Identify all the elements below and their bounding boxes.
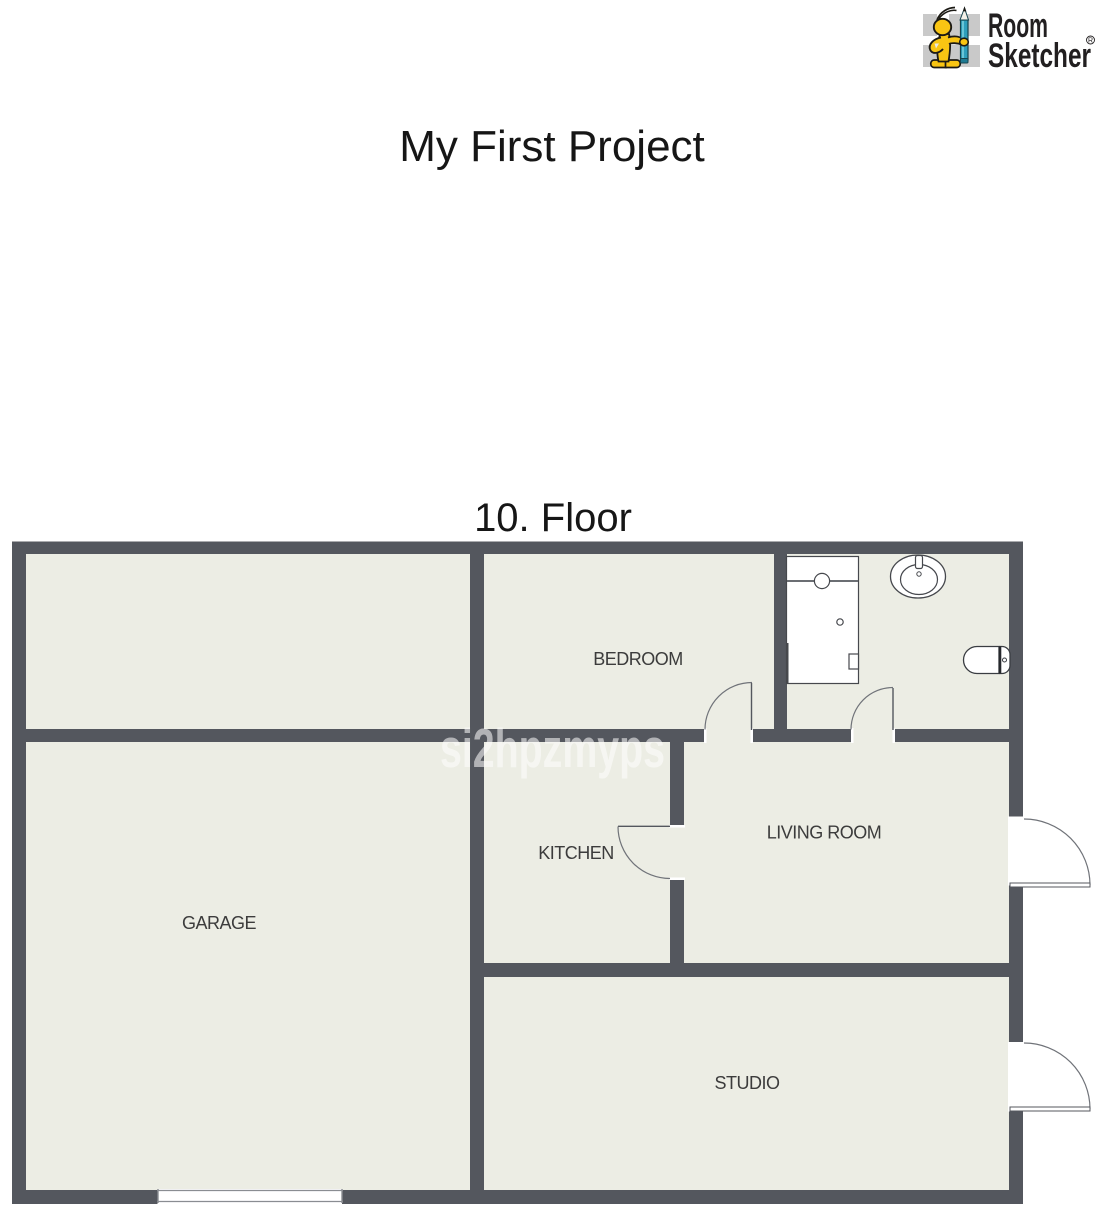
svg-text:BEDROOM: BEDROOM [593,649,683,669]
svg-text:STUDIO: STUDIO [714,1073,780,1093]
svg-text:10. Floor: 10. Floor [474,496,632,540]
svg-text:LIVING ROOM: LIVING ROOM [767,823,882,843]
svg-text:My First Project: My First Project [399,122,705,171]
svg-text:Sketcher: Sketcher [988,37,1091,75]
svg-text:si2hpzmyps: si2hpzmyps [440,717,665,779]
svg-text:GARAGE: GARAGE [182,913,257,933]
svg-text:KITCHEN: KITCHEN [538,843,614,863]
svg-text:R: R [1088,38,1093,45]
